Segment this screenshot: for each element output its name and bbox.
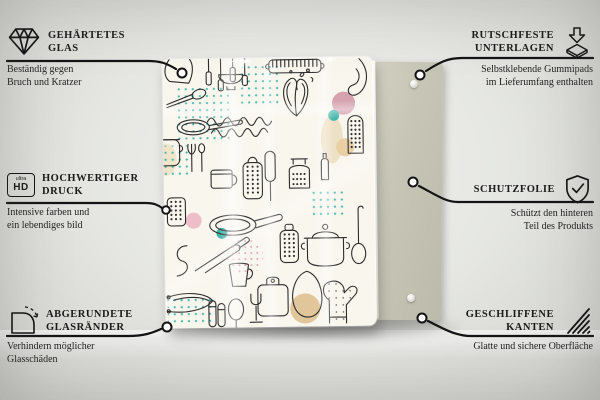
callout-title: ABGERUNDETE [46,308,133,321]
rubber-pad [407,294,415,302]
callout-description: Bruch und Kratzer [7,77,159,90]
sparkle-icon [324,57,337,66]
callout-description: ein lebendiges bild [7,220,159,233]
callout-description: Glasschäden [7,354,159,367]
glass-print [162,57,377,329]
callout-title: HOCHWERTIGER [42,172,139,185]
diamond-icon [7,26,41,57]
rubber-pad [410,80,418,88]
callout-title: GEHÄRTETES [48,29,125,42]
callout-description: im Lieferumfang enthalten [433,77,593,90]
callout-tempered-glass: GEHÄRTETES GLAS Beständig gegen Bruch un… [7,26,159,57]
callout-protective-film: SCHUTZFOLIE Schützt den hinteren Teil de… [433,173,593,205]
callout-title: GESCHLIFFENE [466,308,554,321]
sparkle-icon [230,57,252,73]
callout-title: UNTERLAGEN [471,42,554,55]
callout-description: Beständig gegen [7,64,159,77]
callout-description: Selbstklebende Gummipads [433,64,593,77]
callout-title: RUTSCHFESTE [471,29,554,42]
ultra-hd-icon-label: HD [13,183,28,193]
callout-description: Intensive farben und [7,207,159,220]
callout-title: DRUCK [42,185,139,198]
callout-description: Schützt den hinteren [433,208,593,221]
kitchen-doodle-print-icon [162,57,377,329]
shield-check-icon [562,173,593,205]
callout-non-slip-pads: RUTSCHFESTE UNTERLAGEN Selbstklebende Gu… [433,26,593,58]
polished-edges-icon [561,305,593,336]
callout-title: KANTEN [466,321,554,334]
callout-description: Glatte und sichere Oberfläche [433,341,593,354]
callout-title: SCHUTZFOLIE [474,183,555,196]
callout-hd-print: ultra HD HOCHWERTIGER DRUCK Intensive fa… [7,172,159,198]
callout-description: Verhindern möglicher [7,341,159,354]
callout-title: GLAS [48,42,125,55]
glass-board [162,57,377,329]
callout-rounded-edges: ABGERUNDETE GLASRÄNDER Verhindern möglic… [7,305,159,336]
callout-title: GLASRÄNDER [46,321,133,334]
non-slip-pads-icon [561,26,593,58]
ultra-hd-icon: ultra HD [7,173,35,197]
callout-polished-edges: GESCHLIFFENE KANTEN Glatte und sichere O… [433,305,593,336]
product-infographic: GEHÄRTETES GLAS Beständig gegen Bruch un… [0,0,600,400]
callout-description: Teil des Produkts [433,221,593,234]
rounded-corner-icon [7,305,39,336]
